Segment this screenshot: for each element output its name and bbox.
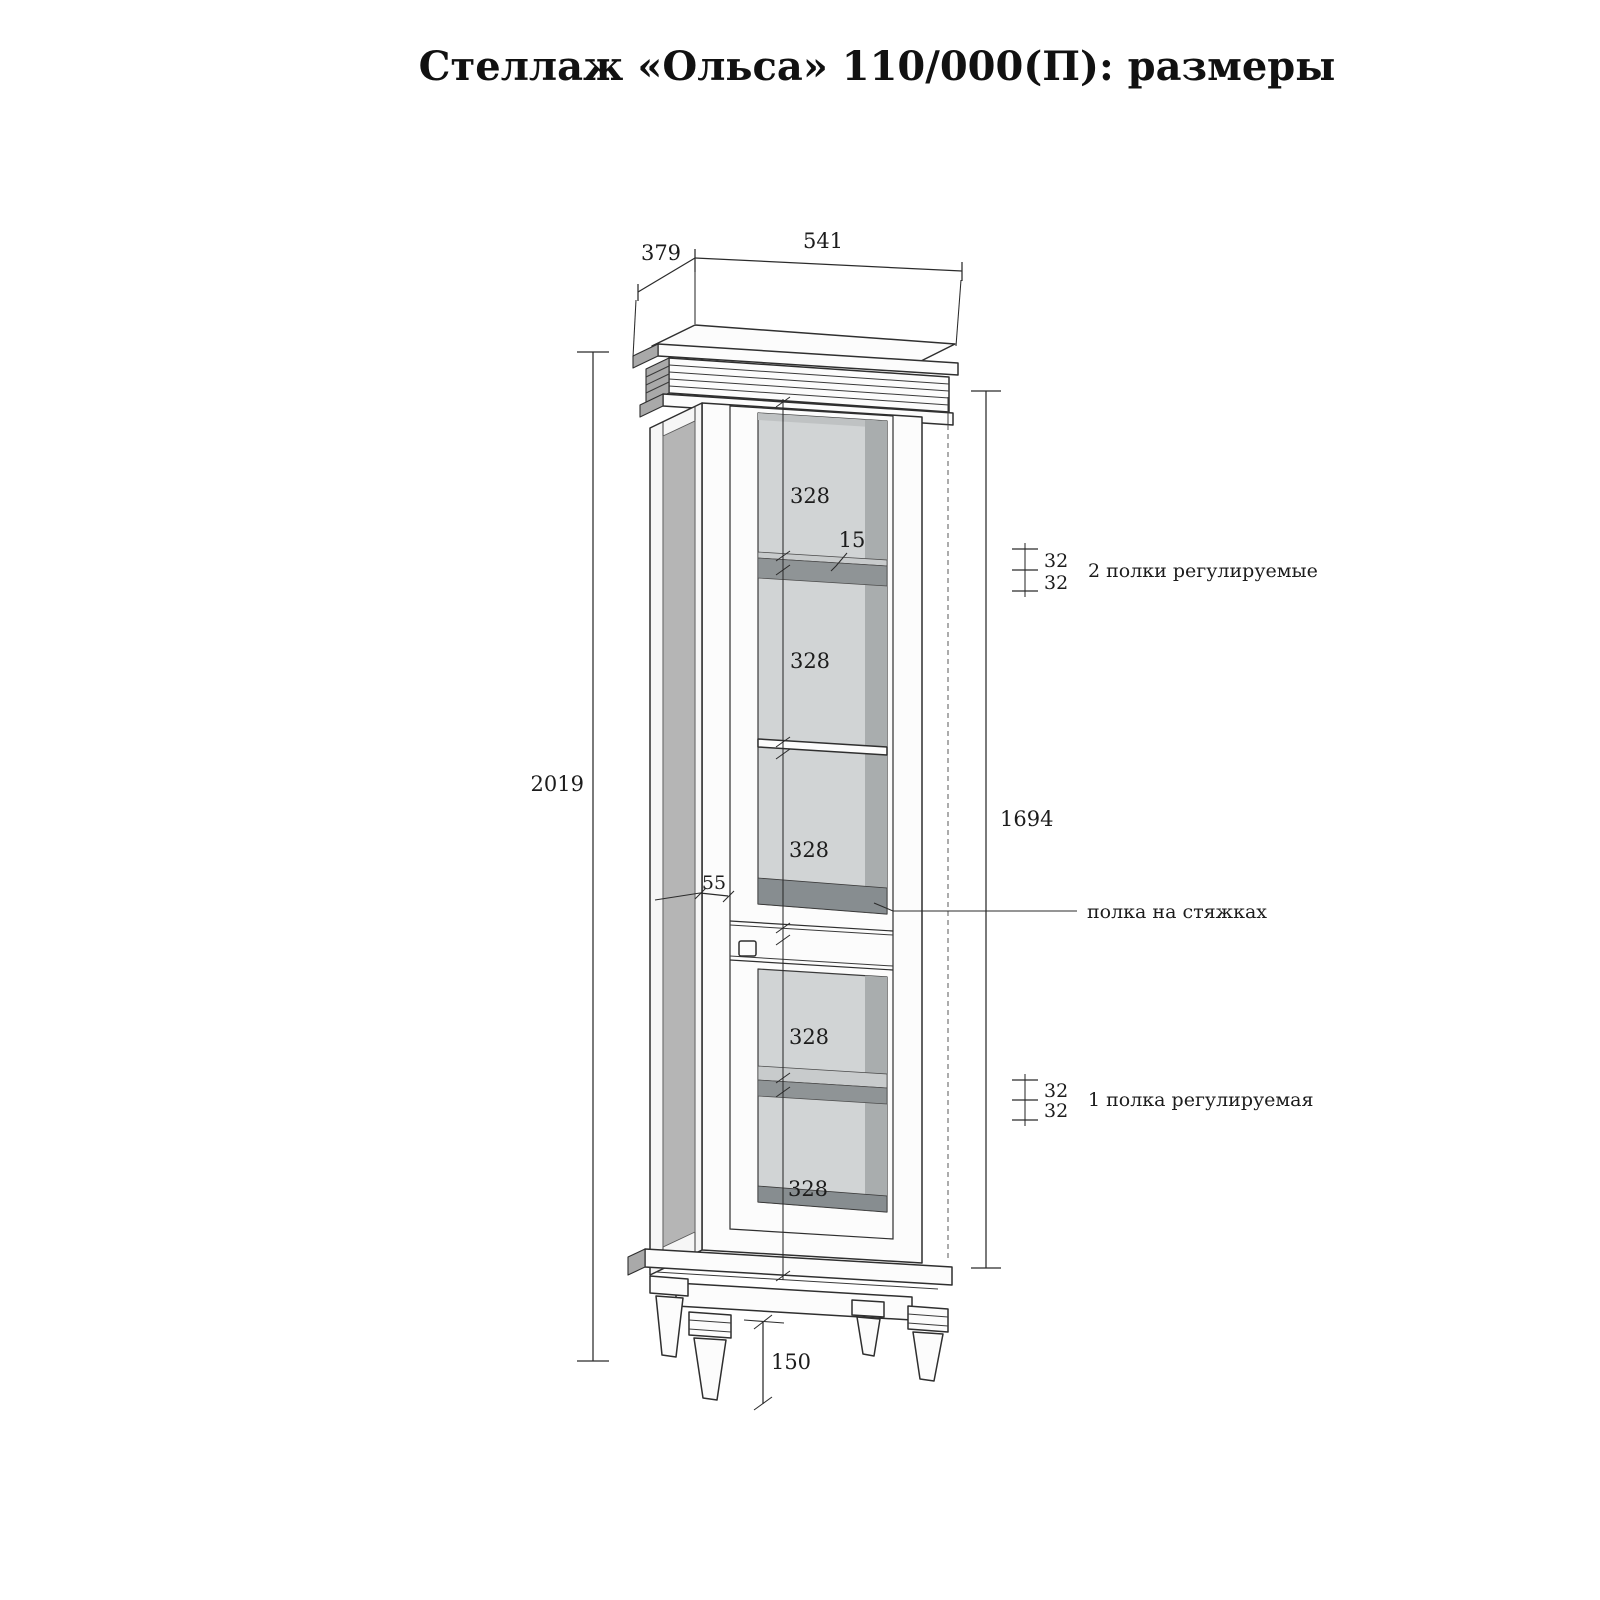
dim-pitch-top-1: 32 (1044, 550, 1068, 572)
label-adjustable-shelves-top: 2 полки регулируемые (1088, 560, 1318, 582)
door-knob (739, 941, 756, 956)
dim-extension (633, 300, 636, 357)
leg-back-right (857, 1317, 880, 1356)
dim-section-2: 328 (790, 649, 830, 673)
leg-front-left (694, 1338, 726, 1400)
dim-inner-height: 1694 (1000, 807, 1053, 831)
dim-leg-height: 150 (771, 1350, 811, 1374)
glass-upper-right-reveal (865, 420, 887, 914)
dimension-drawing: Стеллаж «Ольса» 110/000(П): размеры (0, 0, 1600, 1600)
dim-extension (956, 280, 961, 346)
side-recessed-panel (663, 421, 695, 1247)
leg-front-right (913, 1332, 943, 1381)
dim-pitch-bottom-1: 32 (1044, 1080, 1068, 1102)
leg-back-left (656, 1296, 683, 1357)
leg-front-right-cap (908, 1306, 948, 1332)
dim-top-width: 541 (803, 229, 843, 253)
dim-shelf-thickness: 15 (839, 528, 866, 552)
dim-top-depth: 379 (641, 241, 681, 265)
dim-pitch-top-2: 32 (1044, 572, 1068, 594)
cornice-cap-left (633, 344, 658, 368)
page-title: Стеллаж «Ольса» 110/000(П): размеры (419, 43, 1336, 90)
leg-back-left-cap (650, 1276, 688, 1296)
dim-overall-height: 2019 (531, 772, 584, 796)
dim-section-4: 328 (789, 1025, 829, 1049)
dim-section-5: 328 (788, 1177, 828, 1201)
dim-section-3: 328 (789, 838, 829, 862)
dim-pitch-bottom-2: 32 (1044, 1100, 1068, 1122)
leg-back-right-cap (852, 1300, 884, 1317)
pitch-group-bottom: 32 32 1 полка регулируемая (1012, 1074, 1314, 1126)
label-fixed-shelf: полка на стяжках (1087, 901, 1267, 923)
base (628, 1249, 952, 1400)
dim-stile-width: 55 (702, 872, 726, 894)
pitch-group-top: 32 32 2 полки регулируемые (1012, 543, 1318, 597)
plinth-left-bevel (628, 1249, 645, 1275)
dim-line-width (695, 258, 962, 271)
leg-front-left-cap (689, 1312, 731, 1338)
dim-section-1: 328 (790, 484, 830, 508)
drawing-canvas: Стеллаж «Ольса» 110/000(П): размеры (0, 0, 1600, 1600)
label-adjustable-shelf-bottom: 1 полка регулируемая (1088, 1089, 1314, 1111)
